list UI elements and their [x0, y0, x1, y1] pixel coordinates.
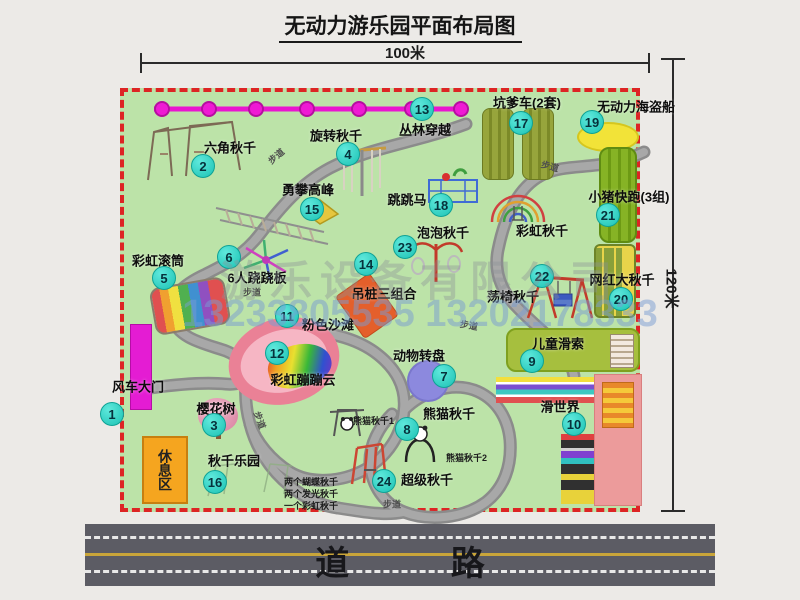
attraction-label: 六角秋千 [204, 138, 256, 157]
attraction-label: 彩虹蹦蹦云 [270, 370, 335, 389]
dimension-width-label: 100米 [360, 42, 450, 63]
attraction-label: 丛林穿越 [399, 120, 451, 139]
attraction-badge: 6 [217, 245, 241, 269]
attraction-label: 儿童滑索 [532, 334, 584, 353]
page-title: 无动力游乐园平面布局图 [0, 10, 800, 40]
attraction-badge: 10 [562, 412, 586, 436]
attraction-badge: 3 [202, 413, 226, 437]
attraction-badge: 9 [520, 349, 544, 373]
windmill-gate-icon [130, 324, 152, 410]
attraction-label: 荡椅秋千 [487, 287, 539, 306]
attraction-badge: 5 [152, 266, 176, 290]
attraction-badge: 23 [393, 235, 417, 259]
slide-steps-icon [602, 382, 634, 428]
zipline-tower-icon [610, 334, 634, 368]
road-label: 道 路 [85, 536, 715, 585]
attraction-label: 跳跳马 [387, 190, 426, 209]
attraction-badge: 11 [275, 304, 299, 328]
attraction-label: 勇攀高峰 [282, 180, 334, 199]
attraction-badge: 12 [265, 341, 289, 365]
attraction-badge: 22 [530, 264, 554, 288]
attraction-label: 动物转盘 [393, 346, 445, 365]
attraction-badge: 20 [609, 287, 633, 311]
attraction-badge: 24 [372, 469, 396, 493]
attraction-badge: 2 [191, 154, 215, 178]
rainbow-slide-icon [561, 434, 594, 504]
attraction-badge: 13 [410, 97, 434, 121]
annotation-label: 熊猫秋千1 [353, 414, 394, 427]
attraction-label: 无动力海盗船 [597, 97, 675, 116]
trail-label: 步道 [383, 498, 401, 511]
road: 道 路 [85, 524, 715, 586]
attraction-badge: 14 [354, 252, 378, 276]
attraction-badge: 16 [203, 470, 227, 494]
annotation-label: 熊猫秋千2 [446, 451, 487, 464]
annotation-label: 一个彩虹秋千 [284, 499, 338, 512]
attraction-label: 泡泡秋千 [417, 223, 469, 242]
attraction-label: 彩虹秋千 [516, 221, 568, 240]
trail-label: 步道 [243, 286, 261, 299]
attraction-badge: 4 [336, 142, 360, 166]
attraction-badge: 1 [100, 402, 124, 426]
attraction-badge: 19 [580, 110, 604, 134]
attraction-label: 熊猫秋千 [423, 404, 475, 423]
slide-world-area [492, 374, 642, 506]
attraction-label: 风车大门 [112, 377, 164, 396]
attraction-badge: 17 [509, 111, 533, 135]
attraction-badge: 8 [395, 417, 419, 441]
attraction-badge: 7 [432, 364, 456, 388]
attraction-label: 网红大秋千 [589, 270, 654, 289]
attraction-label: 旋转秋千 [310, 126, 362, 145]
attraction-label: 秋千乐园 [208, 451, 260, 470]
rest-area-box: 休息区 [142, 436, 188, 504]
attraction-badge: 15 [300, 197, 324, 221]
dimension-height-label: 120米 [662, 268, 683, 308]
attraction-badge: 18 [429, 193, 453, 217]
attraction-label: 小猪快跑(3组) [589, 187, 670, 206]
attraction-label: 坑爹车(2套) [493, 93, 561, 112]
park-map: 休息区 风车大门1六角秋千2樱花树3旋转秋千4彩虹滚筒56人跷跷板6动物转盘7熊… [120, 88, 640, 512]
bubble-swing-icon [410, 243, 462, 282]
attraction-label: 超级秋千 [401, 470, 453, 489]
attraction-label: 吊桩三组合 [351, 284, 416, 303]
attraction-badge: 21 [596, 203, 620, 227]
attraction-label: 粉色沙滩 [302, 315, 354, 334]
attraction-label: 6人跷跷板 [227, 268, 286, 287]
